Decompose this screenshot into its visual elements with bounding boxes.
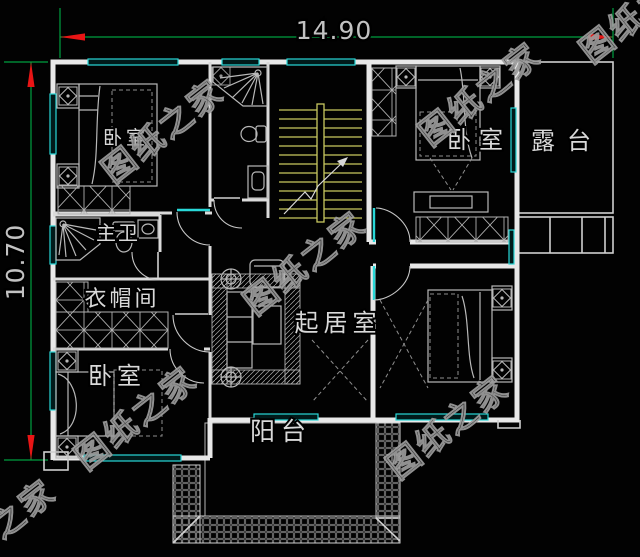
floor-plan-svg: 14.90 10.70 <box>0 0 640 557</box>
speaker-top <box>221 269 241 289</box>
label-master-bath: 主卫 <box>96 221 140 245</box>
label-terrace: 露台 <box>531 127 603 155</box>
label-balcony: 阳台 <box>250 417 312 446</box>
label-cloakroom: 衣帽间 <box>84 287 159 312</box>
dimension-width-text: 14.90 <box>296 16 373 45</box>
floor-plan-canvas: 14.90 10.70 <box>0 0 640 557</box>
label-bedroom-bottom-left: 卧室 <box>88 362 146 390</box>
dimension-height-text: 10.70 <box>1 224 30 301</box>
label-living-room: 起居室 <box>295 309 382 337</box>
speaker-bottom <box>221 367 241 387</box>
